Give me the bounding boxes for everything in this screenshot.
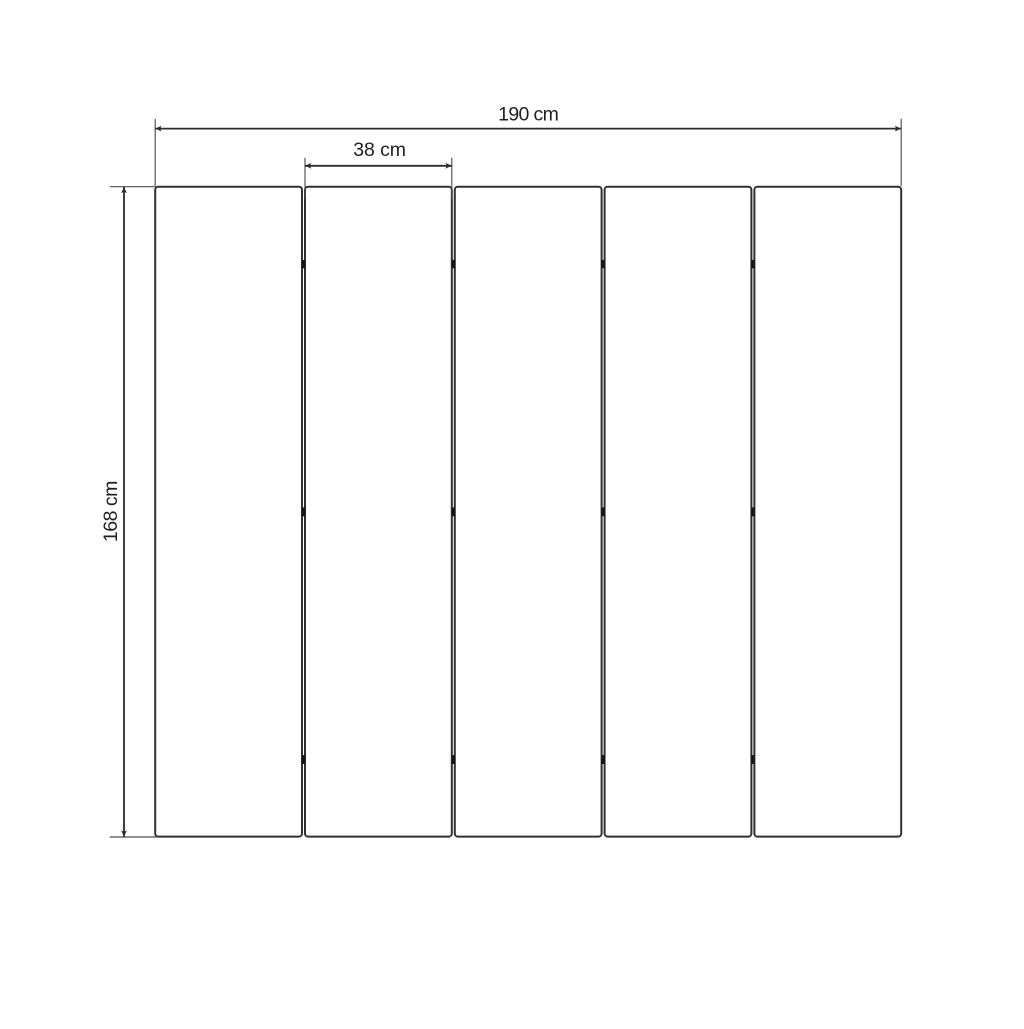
svg-text:168 cm: 168 cm — [100, 481, 122, 542]
svg-text:190 cm: 190 cm — [498, 104, 558, 126]
svg-text:38 cm: 38 cm — [353, 139, 406, 161]
